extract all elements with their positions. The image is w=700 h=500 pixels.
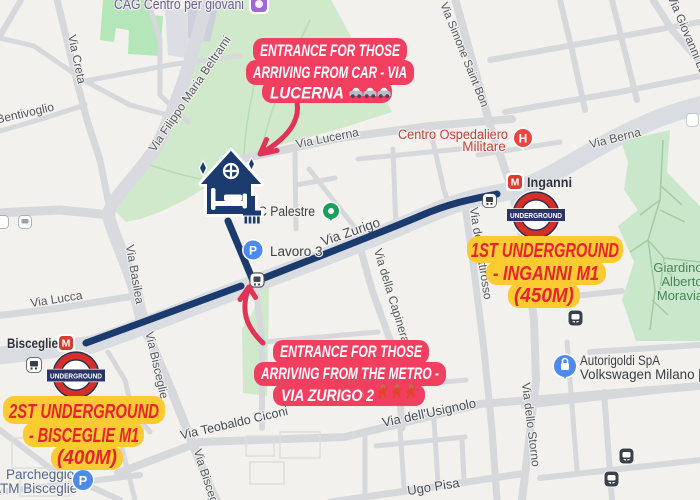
svg-text:2ST UNDERGROUND: 2ST UNDERGROUND [8, 401, 159, 423]
svg-text:M: M [511, 177, 520, 189]
svg-text:UNDERGROUND: UNDERGROUND [50, 372, 103, 381]
svg-text:Alberto: Alberto [661, 274, 700, 289]
svg-text:- INGANNI M1: - INGANNI M1 [493, 263, 599, 285]
svg-text:Lavoro 3: Lavoro 3 [270, 244, 323, 259]
svg-text:Volkswagen Milano [: Volkswagen Milano [ [580, 367, 700, 382]
svg-text:CAG Centro per giovani: CAG Centro per giovani [114, 0, 244, 13]
svg-text:ATM Bisceglie: ATM Bisceglie [0, 481, 77, 496]
svg-text:ARRIVING FROM THE METRO -: ARRIVING FROM THE METRO - [260, 365, 439, 383]
svg-text:Bisceglie: Bisceglie [7, 335, 58, 351]
svg-text:ENTRANCE FOR THOSE: ENTRANCE FOR THOSE [260, 42, 401, 60]
svg-text:Autorigoldi SpA: Autorigoldi SpA [580, 353, 660, 368]
svg-text:M: M [62, 338, 71, 350]
svg-text:P: P [249, 244, 257, 258]
svg-text:Giardino: Giardino [653, 260, 700, 275]
svg-text:P: P [79, 473, 88, 488]
svg-text:♪: ♪ [360, 390, 365, 401]
svg-text:C Palestre: C Palestre [258, 204, 315, 219]
svg-text:UNDERGROUND: UNDERGROUND [510, 211, 563, 220]
svg-text:(400M): (400M) [57, 447, 117, 469]
svg-text:Militare: Militare [462, 139, 506, 154]
svg-text:H: H [519, 132, 528, 146]
svg-text:(450M): (450M) [514, 285, 574, 307]
svg-text:- BISCEGLIE M1: - BISCEGLIE M1 [29, 425, 139, 447]
svg-text:LUCERNA: LUCERNA [270, 85, 344, 103]
svg-text:1ST UNDERGROUND: 1ST UNDERGROUND [471, 240, 619, 262]
svg-text:ARRIVING FROM CAR - VIA: ARRIVING FROM CAR - VIA [252, 64, 407, 82]
svg-text:ENTRANCE FOR THOSE: ENTRANCE FOR THOSE [280, 343, 423, 361]
svg-text:Moravia: Moravia [657, 288, 700, 303]
svg-text:Inganni: Inganni [527, 174, 572, 190]
